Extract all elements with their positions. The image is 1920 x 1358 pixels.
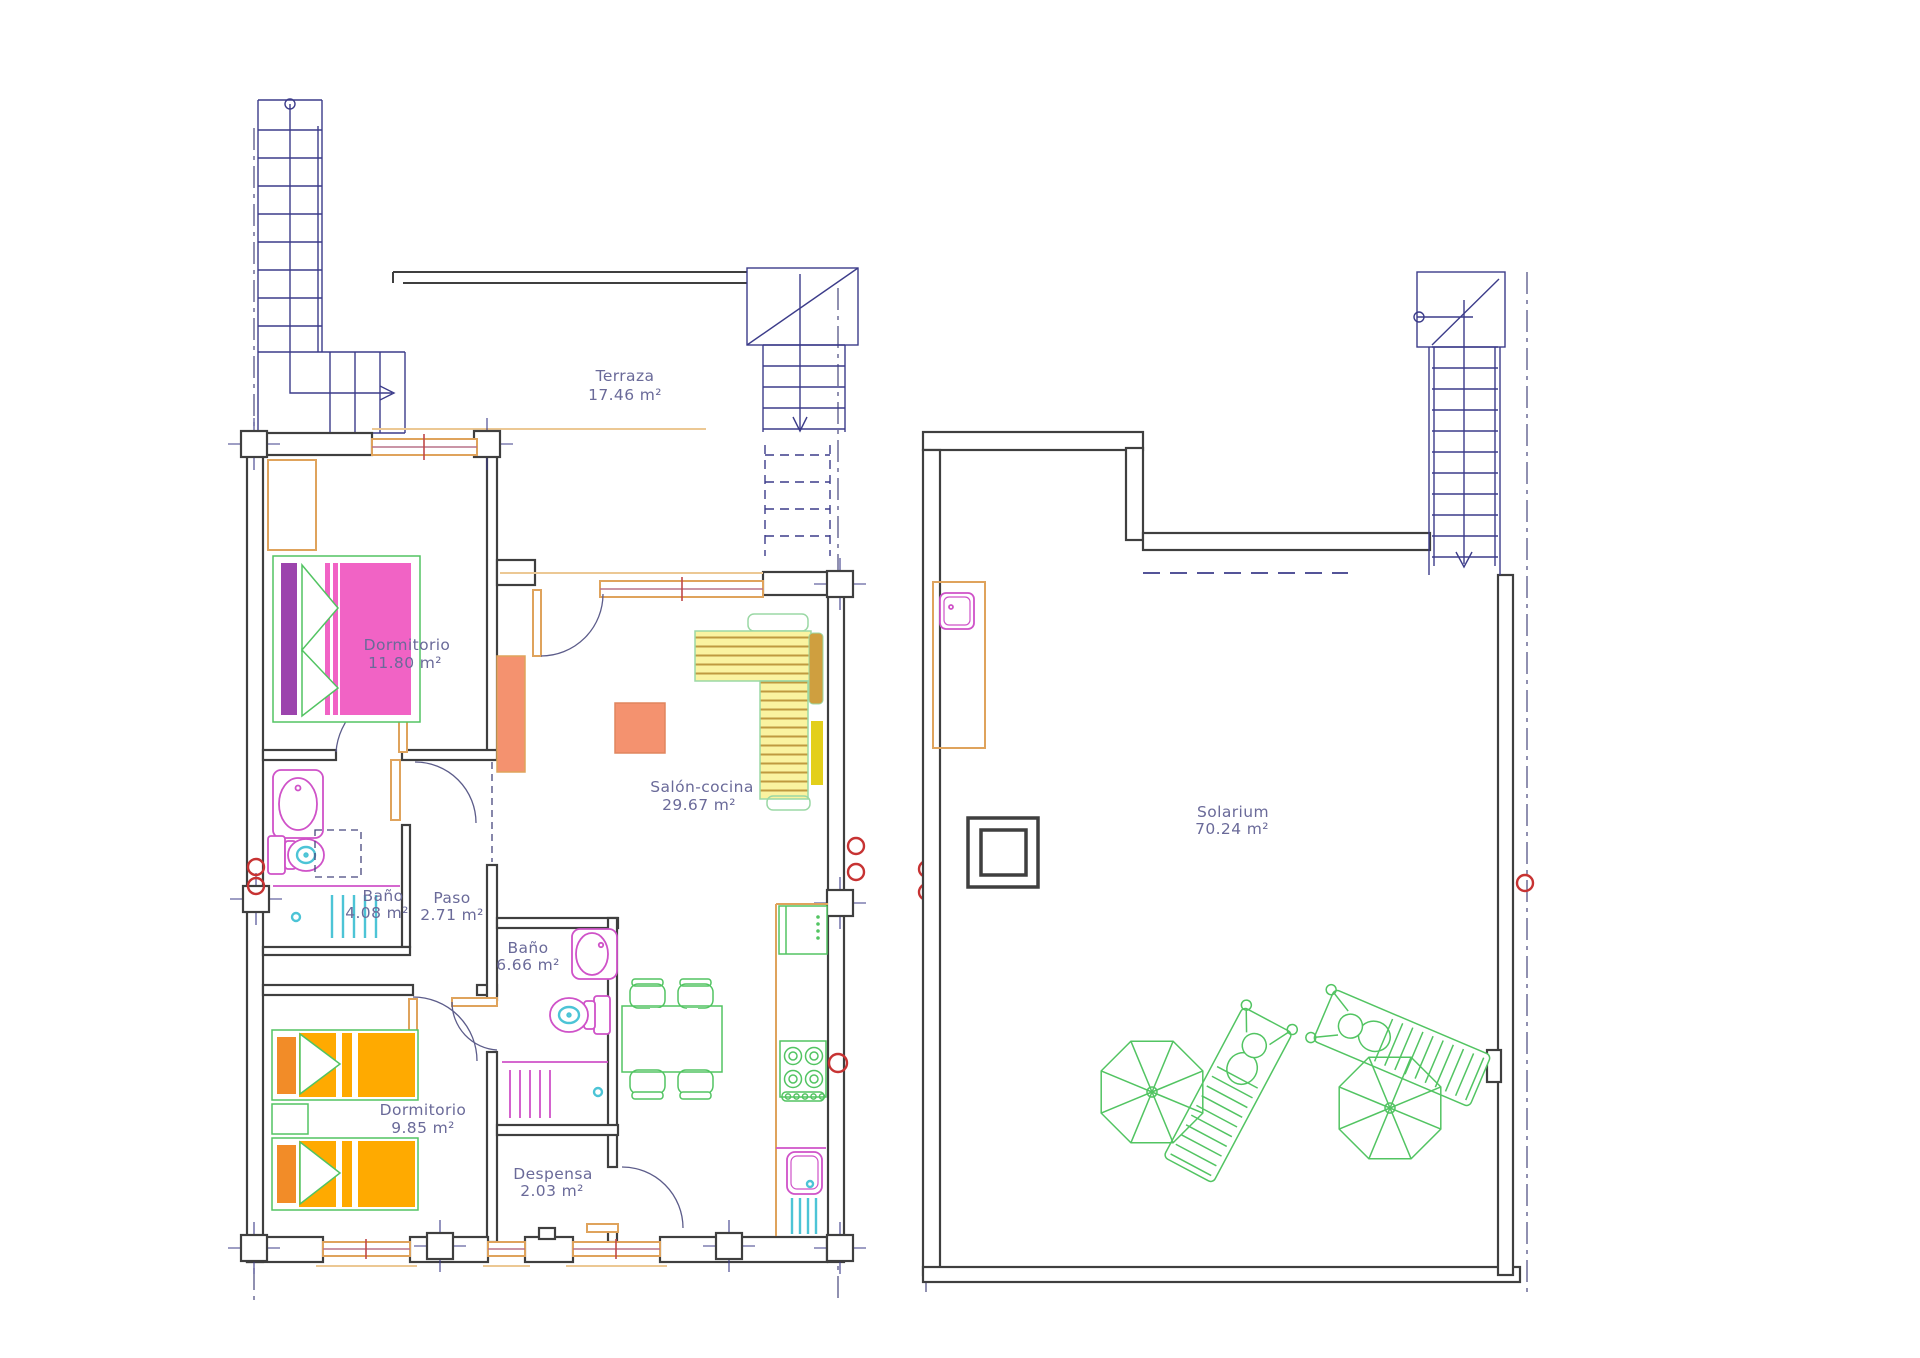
sun-lounger-1 (1161, 998, 1299, 1184)
label-bano2-name: Baño (507, 939, 548, 957)
shower (510, 1070, 602, 1118)
label-bano1-area: 4.08 m² (345, 904, 409, 922)
kitchen-sink (787, 1152, 822, 1194)
sideboard (497, 656, 525, 772)
floor-plan-canvas: Terraza 17.46 m² Dormitorio 11.80 m² Sal… (0, 0, 1920, 1358)
label-dormitorio2-name: Dormitorio (380, 1101, 467, 1119)
fridge (779, 906, 827, 954)
label-terraza-name: Terraza (595, 367, 655, 385)
dining-set (622, 979, 722, 1099)
dishwasher (792, 1198, 816, 1234)
label-terraza-area: 17.46 m² (588, 386, 662, 404)
single-bed-1 (272, 1030, 418, 1100)
terrace-staircase (747, 268, 858, 556)
label-solarium-name: Solarium (1197, 803, 1269, 821)
terrace-parapet-wall (372, 272, 747, 429)
sun-lounger-2 (1304, 983, 1492, 1110)
label-dormitorio1-area: 11.80 m² (368, 654, 442, 672)
single-bed-2 (272, 1138, 418, 1210)
label-dormitorio1-name: Dormitorio (364, 636, 451, 654)
label-despensa-name: Despensa (513, 1165, 593, 1183)
label-dormitorio2-area: 9.85 m² (391, 1119, 455, 1137)
label-paso-name: Paso (433, 889, 470, 907)
parasol-1 (1101, 1041, 1203, 1143)
coffee-table (615, 703, 665, 753)
solarium-staircase (1414, 272, 1505, 575)
wardrobe (268, 460, 316, 550)
hob (780, 1041, 826, 1101)
label-salon-name: Salón-cocina (650, 778, 754, 796)
washbasin (572, 929, 617, 979)
exterior-staircase (258, 99, 405, 433)
label-bano1-name: Baño (362, 887, 403, 905)
label-solarium-area: 70.24 m² (1195, 820, 1269, 838)
chimney-shaft (968, 818, 1038, 887)
toilet (550, 996, 610, 1034)
nightstand (272, 1104, 308, 1134)
label-salon-area: 29.67 m² (662, 796, 736, 814)
label-bano2-area: 6.66 m² (496, 956, 560, 974)
label-paso-area: 2.71 m² (420, 906, 484, 924)
label-despensa-area: 2.03 m² (520, 1182, 584, 1200)
kitchen-counter (776, 904, 828, 1236)
washbasin (273, 770, 323, 838)
washbasin (940, 593, 974, 629)
